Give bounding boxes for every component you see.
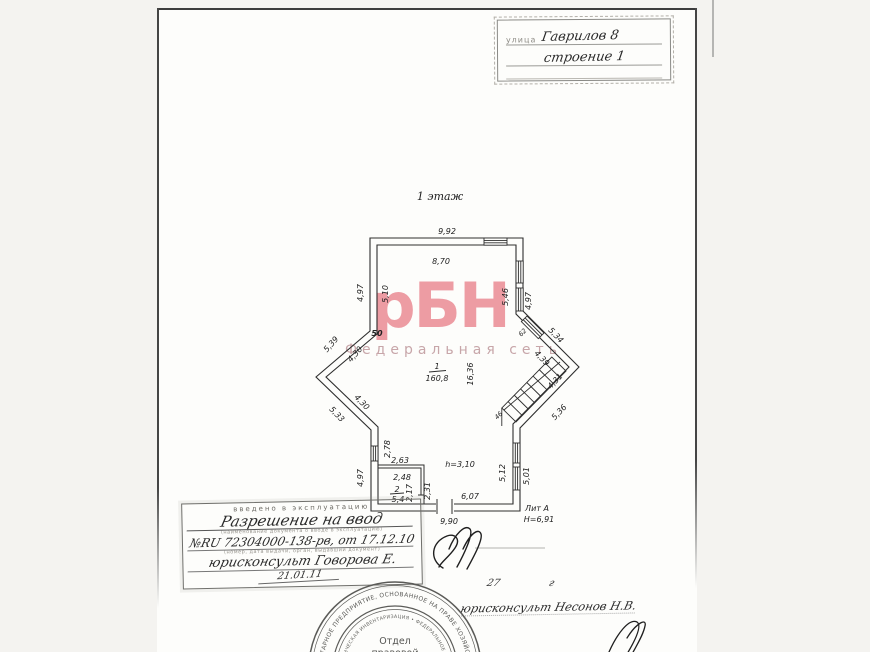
dim-left-diag-upper-outer: 5,39 <box>322 335 341 354</box>
window-right-upper-2 <box>516 288 523 311</box>
approval-stamp-box: введено в эксплуатацию Разрешение на вво… <box>181 498 423 589</box>
window-right-lower-1 <box>513 443 520 463</box>
dim-right-diag-lower-outer: 5,36 <box>550 403 569 422</box>
dim-right-lower-outer: 5,01 <box>522 467 531 485</box>
liter-label: Лит А <box>524 504 549 513</box>
dim-left-diag-lower-outer: 5,33 <box>327 405 346 424</box>
round-stamp: УНИТАРНОЕ ПРЕДПРИЯТИЕ, ОСНОВАННОЕ НА ПРА… <box>295 578 495 652</box>
dim-left-upper-outer: 4,97 <box>356 283 365 302</box>
dim-right-diag-upper-outer: 5,34 <box>546 326 565 345</box>
room2-fraction-line <box>390 493 404 494</box>
window-right-upper-1 <box>516 261 523 283</box>
dim-left-upper-inner: 5,10 <box>381 285 390 303</box>
window-top <box>484 238 507 245</box>
dim-right-lower-inner: 5,12 <box>498 464 507 482</box>
dim-top-outer: 9,92 <box>438 227 456 236</box>
scanned-document: улица Гаврилов 8 строение 1 1 этаж рБН Ф… <box>0 0 870 652</box>
ceiling-height-note: h=3,10 <box>445 460 475 469</box>
dim-room2-top-outer: 2,63 <box>391 456 409 465</box>
signature-secondary <box>595 612 665 652</box>
dim-right-upper-inner: 5,46 <box>501 288 510 306</box>
room2-number: 2 <box>394 485 399 494</box>
round-stamp-center-line1: Отдел <box>379 636 411 647</box>
dim-top-inner: 8,70 <box>432 257 450 266</box>
dim-bottom-inner: 6,07 <box>461 492 480 501</box>
dim-right-diag-upper-inner: 4,39 <box>532 349 551 368</box>
entrance-door-opening <box>436 499 454 515</box>
window-left-lower <box>371 446 378 461</box>
dim-right-upper-outer: 4,97 <box>524 291 533 310</box>
signature-main <box>415 520 555 580</box>
dim-diagonal-window-mark: 62 <box>517 327 529 339</box>
dim-room2-top-inner: 2,48 <box>393 473 411 482</box>
dim-room2-right-outer: 2,31 <box>423 482 432 500</box>
room1-depth: 16,36 <box>466 363 475 386</box>
room1-number: 1 <box>434 362 439 371</box>
dim-left-lower-outer: 4,97 <box>356 468 365 487</box>
red-wall-mark: 50 <box>371 329 383 338</box>
window-right-lower-2 <box>513 467 520 490</box>
round-stamp-center-line2: правовой <box>371 648 418 652</box>
dim-stair-mark: 46 <box>493 410 505 422</box>
room1-area: 160,8 <box>426 374 449 383</box>
dim-left-diag-lower-inner: 4,30 <box>352 393 371 412</box>
